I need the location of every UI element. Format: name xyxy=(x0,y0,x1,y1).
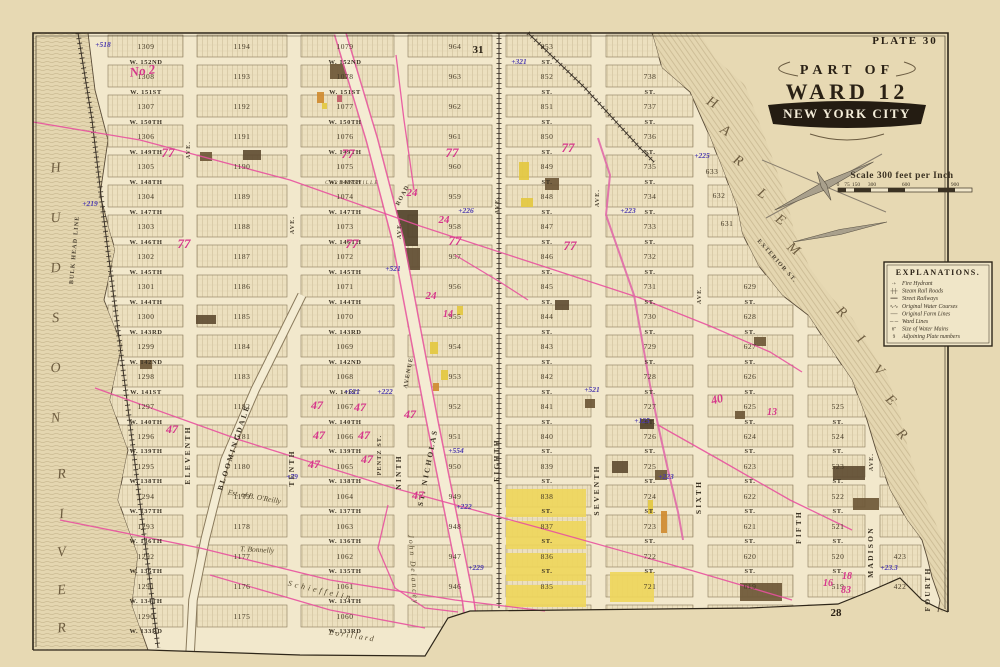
street-suffix-label: ST. xyxy=(542,239,553,246)
street-label: W. 151ST xyxy=(130,89,162,96)
street-label: W. 146TH xyxy=(129,239,162,246)
block-number: 961 xyxy=(449,132,462,141)
street-suffix-label: ST. xyxy=(645,209,656,216)
block-number: 1176 xyxy=(234,582,251,591)
block-number: 631 xyxy=(721,219,734,228)
block-number: 724 xyxy=(644,492,657,501)
street-label: W. 150TH xyxy=(129,119,162,126)
street-suffix-label: ST. xyxy=(645,89,656,96)
street-suffix-label: ST. xyxy=(645,299,656,306)
street-label: W. 147TH xyxy=(129,209,162,216)
block-number: 725 xyxy=(644,462,657,471)
street-suffix-label: ST. xyxy=(542,59,553,66)
block-number: 1073 xyxy=(337,222,354,231)
block-number: 1075 xyxy=(337,162,354,171)
block-number: 947 xyxy=(449,552,462,561)
annotation-magenta: 13 xyxy=(767,407,777,418)
street-label: W. 137TH xyxy=(129,508,162,515)
block-number: 721 xyxy=(644,582,657,591)
block-number: 850 xyxy=(541,132,554,141)
scale-tick: 600 xyxy=(902,182,911,188)
block-number: 851 xyxy=(541,102,554,111)
block-number: 954 xyxy=(449,342,462,351)
annotation-magenta: 77 xyxy=(562,140,576,155)
avenue-label: FIFTH xyxy=(794,510,803,544)
street-suffix-label: ST. xyxy=(833,538,844,545)
block-number: 727 xyxy=(644,402,657,411)
street-suffix-label: ST. xyxy=(645,478,656,485)
scale-caption: Scale 300 feet per Inch xyxy=(850,171,953,181)
block-number: 951 xyxy=(449,432,462,441)
building-mark xyxy=(555,300,569,310)
street-label: W. 138TH xyxy=(328,478,361,485)
block-number: 1187 xyxy=(234,252,251,261)
block-number: 738 xyxy=(644,72,657,81)
block-number: 1291 xyxy=(138,582,155,591)
block-number: 849 xyxy=(541,162,554,171)
block-number: 633 xyxy=(706,167,719,176)
street-suffix-label: ST. xyxy=(645,149,656,156)
avenue-label: AVE. xyxy=(697,286,703,304)
block-number: 620 xyxy=(744,552,757,561)
block-number: 964 xyxy=(449,42,462,51)
legend-symbol: ·+ xyxy=(892,282,897,287)
annotation-purple: +521 xyxy=(584,385,600,394)
hudson-river-letter: D xyxy=(49,261,62,277)
block-number: 736 xyxy=(644,132,657,141)
block-number: 844 xyxy=(541,312,554,321)
street-suffix-label: ST. xyxy=(645,239,656,246)
block-number: 1079 xyxy=(337,42,354,51)
annotation-purple: +222 xyxy=(377,387,393,396)
block-number: 1190 xyxy=(234,162,251,171)
block-number: 950 xyxy=(449,462,462,471)
scale-tick: 300 xyxy=(868,182,877,188)
block-number: 733 xyxy=(644,222,657,231)
block-number: 1060 xyxy=(337,612,354,621)
block-number: 1077 xyxy=(337,102,354,111)
block-number: 1186 xyxy=(234,282,251,291)
block-number: 1305 xyxy=(138,162,155,171)
street-suffix-label: ST. xyxy=(745,329,756,336)
block-number: 837 xyxy=(541,522,554,531)
avenue-label: TENTH xyxy=(287,449,296,486)
annotation-magenta: 77 xyxy=(564,238,578,253)
block-number: 1178 xyxy=(234,522,251,531)
block-number: 1293 xyxy=(138,522,155,531)
avenue-label: AVE. xyxy=(397,221,403,239)
block-number: 731 xyxy=(644,282,657,291)
legend-symbol: ┼┼ xyxy=(889,288,898,295)
street-suffix-label: ST. xyxy=(745,538,756,545)
block-number: 1189 xyxy=(234,192,251,201)
annotation-magenta: 77 xyxy=(446,145,460,160)
block-number: 1292 xyxy=(138,552,155,561)
annotation-purple: +321 xyxy=(511,57,527,66)
street-label: W. 144TH xyxy=(129,299,162,306)
street-suffix-label: ST. xyxy=(542,508,553,515)
block-number: 959 xyxy=(449,192,462,201)
block-number: 840 xyxy=(541,432,554,441)
block-number: 520 xyxy=(832,552,845,561)
scale-tick: 900 xyxy=(951,182,960,188)
street-label: W. 134TH xyxy=(129,598,162,605)
block-number: 524 xyxy=(832,432,845,441)
block-number: 1294 xyxy=(138,492,155,501)
title-part-of: PART OF xyxy=(800,63,894,78)
street-suffix-label: ST. xyxy=(645,359,656,366)
legend-symbol: ══ xyxy=(889,297,898,302)
title-city: NEW YORK CITY xyxy=(783,106,911,121)
annotation-magenta: 24 xyxy=(438,214,451,226)
street-suffix-label: ST. xyxy=(542,568,553,575)
block-number: 852 xyxy=(541,72,554,81)
block-number: 1180 xyxy=(234,462,251,471)
block-number: 521 xyxy=(832,522,845,531)
annotation-magenta: 14 xyxy=(443,309,453,320)
block-number: 1183 xyxy=(234,372,251,381)
street-label: W. 139TH xyxy=(129,448,162,455)
block-number: 423 xyxy=(894,552,907,561)
atlas-map-canvas: 1290129112921293129412951296129712981299… xyxy=(0,0,1000,667)
annotation-magenta: 47 xyxy=(403,407,417,421)
avenue-label: SIXTH xyxy=(694,480,703,514)
building-mark xyxy=(521,198,533,207)
street-suffix-label: ST. xyxy=(645,448,656,455)
annotation-magenta: 47 xyxy=(360,452,374,466)
street-suffix-label: ST. xyxy=(542,149,553,156)
building-mark xyxy=(196,315,216,324)
block-number: 1175 xyxy=(234,612,251,621)
annotation-magenta: 77 xyxy=(178,236,192,251)
block-number: 1303 xyxy=(138,222,155,231)
avenue-label: AVE. xyxy=(595,189,601,207)
annotation-purple: +521 xyxy=(385,264,401,273)
block-number: 422 xyxy=(894,582,907,591)
block-number: 960 xyxy=(449,162,462,171)
block-number: 1193 xyxy=(234,72,251,81)
legend-title: EXPLANATIONS. xyxy=(896,268,980,277)
annotation-magenta: 77 xyxy=(342,146,356,161)
block-number: 1290 xyxy=(138,612,155,621)
street-label: W. 136TH xyxy=(129,538,162,545)
building-mark xyxy=(243,150,261,160)
block-number: 522 xyxy=(832,492,845,501)
street-label: W. 144TH xyxy=(328,299,361,306)
street-label: W. 145TH xyxy=(328,269,361,276)
block-number: 848 xyxy=(541,192,554,201)
annotation-purple: +79 xyxy=(286,472,298,481)
street-suffix-label: ST. xyxy=(542,269,553,276)
avenue-label: EIGHTH xyxy=(492,438,501,482)
block-number: 525 xyxy=(832,402,845,411)
legend-symbol: ── xyxy=(889,312,898,317)
annotation-magenta: 77 xyxy=(162,145,176,160)
annotation-purple: +226 xyxy=(458,206,474,215)
street-label: W. 149TH xyxy=(129,149,162,156)
avenue-label: SEVENTH xyxy=(592,464,601,515)
building-mark xyxy=(735,411,745,419)
street-suffix-label: ST. xyxy=(745,389,756,396)
block-number: 1309 xyxy=(138,42,155,51)
block-number: 1295 xyxy=(138,462,155,471)
building-mark xyxy=(612,461,628,473)
street-suffix-label: ST. xyxy=(645,389,656,396)
block-number: 956 xyxy=(449,282,462,291)
street-suffix-label: ST. xyxy=(833,448,844,455)
legend-symbol: 6″ xyxy=(892,328,897,333)
estate-name: T. Bonnelly xyxy=(240,544,275,555)
street-suffix-label: ST. xyxy=(542,359,553,366)
annotation-purple: +219 xyxy=(82,199,98,208)
block-number: 1072 xyxy=(337,252,354,261)
adjoining-plate-top: 31 xyxy=(473,44,484,56)
street-label: W. 145TH xyxy=(129,269,162,276)
block-number: 722 xyxy=(644,552,657,561)
block-number: 842 xyxy=(541,372,554,381)
annotation-magenta: 24 xyxy=(406,187,419,199)
block-number: 1076 xyxy=(337,132,354,141)
block-number: 853 xyxy=(541,42,554,51)
legend-symbol: ─ ─ xyxy=(889,320,899,325)
street-suffix-label: ST. xyxy=(542,419,553,426)
block-number: 1078 xyxy=(337,72,354,81)
block-number: 846 xyxy=(541,252,554,261)
block-number: 1301 xyxy=(138,282,155,291)
block-number: 621 xyxy=(744,522,757,531)
block-number: 958 xyxy=(449,222,462,231)
street-suffix-label: ST. xyxy=(645,269,656,276)
street-suffix-label: ST. xyxy=(542,89,553,96)
block-number: 1071 xyxy=(337,282,354,291)
street-suffix-label: ST. xyxy=(542,119,553,126)
block-number: 838 xyxy=(541,492,554,501)
block-number: 726 xyxy=(644,432,657,441)
avenue-label: AVE. xyxy=(186,141,192,159)
block-number: 835 xyxy=(541,582,554,591)
annotation-magenta: 18 xyxy=(842,571,852,582)
annotation-magenta: 47 xyxy=(165,422,179,436)
street-label: W. 143RD xyxy=(328,329,361,336)
scale-tick: 150 xyxy=(852,182,861,188)
block-number: 1307 xyxy=(138,102,155,111)
block-number: 729 xyxy=(644,342,657,351)
street-label: W. 140TH xyxy=(328,419,361,426)
block-number: 948 xyxy=(449,522,462,531)
annotation-magenta: 47 xyxy=(353,400,367,414)
street-suffix-label: ST. xyxy=(542,389,553,396)
street-suffix-label: ST. xyxy=(745,419,756,426)
block-number: 1299 xyxy=(138,342,155,351)
annotation-purple: +225 xyxy=(694,151,710,160)
block-number: 737 xyxy=(644,102,657,111)
block-number: 632 xyxy=(713,191,726,200)
avenue-label: MADISON xyxy=(866,526,875,578)
avenue-label: AVE. xyxy=(869,453,875,471)
street-suffix-label: ST. xyxy=(645,538,656,545)
street-suffix-label: ST. xyxy=(645,508,656,515)
legend-item-label: Fire Hydrant xyxy=(901,281,933,287)
street-suffix-label: ST. xyxy=(745,568,756,575)
block-number: 1188 xyxy=(234,222,251,231)
street-label: W. 142ND xyxy=(129,359,162,366)
annotation-purple: +222 xyxy=(456,502,472,511)
building-mark xyxy=(322,103,327,109)
block-number: 952 xyxy=(449,402,462,411)
block-number: 957 xyxy=(449,252,462,261)
block-number: 735 xyxy=(644,162,657,171)
street-label: W. 135TH xyxy=(129,568,162,575)
street-suffix-label: ST. xyxy=(745,299,756,306)
block-number: 841 xyxy=(541,402,554,411)
block-number: 1063 xyxy=(337,522,354,531)
annotation-purple: +23.3 xyxy=(880,563,898,572)
street-label: W. 150TH xyxy=(328,119,361,126)
street-label: W. 147TH xyxy=(328,209,361,216)
avenue-label: NINTH xyxy=(394,454,403,490)
block-number: 1069 xyxy=(337,342,354,351)
block-number: 836 xyxy=(541,552,554,561)
map-sheet: 1290129112921293129412951296129712981299… xyxy=(0,0,1000,667)
street-suffix-label: ST. xyxy=(745,508,756,515)
block-number: 625 xyxy=(744,402,757,411)
block-number: 626 xyxy=(744,372,757,381)
block-number: 734 xyxy=(644,192,657,201)
building-mark xyxy=(433,383,439,391)
annotation-purple: +125 xyxy=(634,416,650,425)
block-number: 732 xyxy=(644,252,657,261)
block-number: 629 xyxy=(744,282,757,291)
block-number: 622 xyxy=(744,492,757,501)
block-number: 1297 xyxy=(138,402,155,411)
block-number: 946 xyxy=(449,582,462,591)
block-number: 730 xyxy=(644,312,657,321)
annotation-magenta: 47 xyxy=(312,428,326,442)
building-mark xyxy=(430,342,438,354)
street-label: W. 133RD xyxy=(129,628,162,635)
block-number: 1067 xyxy=(337,402,354,411)
street-suffix-label: ST. xyxy=(542,209,553,216)
street-label: W. 141ST xyxy=(130,389,162,396)
street-suffix-label: ST. xyxy=(542,329,553,336)
legend-box: EXPLANATIONS. ·+Fire Hydrant┼┼Steam Rail… xyxy=(884,262,992,346)
annotation-magenta: 24 xyxy=(425,290,438,302)
block-number: 1064 xyxy=(337,492,354,501)
avenue-label: ELEVENTH xyxy=(183,425,192,484)
block-number: 1300 xyxy=(138,312,155,321)
plate-number: PLATE 30 xyxy=(872,35,938,47)
block-number: 1074 xyxy=(337,192,354,201)
block-number: 723 xyxy=(644,522,657,531)
annotation-magenta: 77 xyxy=(449,233,463,248)
street-label: W. 135TH xyxy=(328,568,361,575)
block-number: 1304 xyxy=(138,192,155,201)
legend-item-label: Original Water Courses xyxy=(902,304,958,310)
street-suffix-label: ST. xyxy=(542,179,553,186)
block-number: 1184 xyxy=(234,342,251,351)
legend-item-label: Adjoining Plate numbers xyxy=(901,334,961,340)
block-number: 523 xyxy=(832,462,845,471)
annotation-magenta: 77 xyxy=(346,236,360,251)
legend-item-label: Size of Water Mains xyxy=(902,326,949,333)
annotation-purple: +223 xyxy=(658,472,674,481)
block-number: 962 xyxy=(449,102,462,111)
avenue-label: AVE. xyxy=(495,196,501,214)
hudson-river-letter: O xyxy=(50,361,62,377)
annotation-magenta: 83 xyxy=(841,585,851,596)
block-number: 1302 xyxy=(138,252,155,261)
legend-symbol: ∿∿ xyxy=(890,305,898,310)
street-suffix-label: ST. xyxy=(833,508,844,515)
street-label: W. 137TH xyxy=(328,508,361,515)
street-suffix-label: ST. xyxy=(833,419,844,426)
street-suffix-label: ST. xyxy=(833,478,844,485)
building-mark xyxy=(519,162,529,180)
annotation-purple: +223 xyxy=(620,206,636,215)
building-mark xyxy=(317,92,324,103)
street-suffix-label: ST. xyxy=(542,448,553,455)
block-number: 627 xyxy=(744,342,757,351)
annotation-magenta: 47 xyxy=(310,398,324,412)
avenue-label: AVE. xyxy=(290,216,296,234)
building-mark xyxy=(337,95,342,102)
block-number: 1070 xyxy=(337,312,354,321)
block-number: 728 xyxy=(644,372,657,381)
annotation-purple: +554 xyxy=(448,446,464,455)
street-label: W. 136TH xyxy=(328,538,361,545)
annotation-purple: +521 xyxy=(344,387,360,396)
street-suffix-label: ST. xyxy=(645,568,656,575)
street-suffix-label: ST. xyxy=(745,359,756,366)
avenue-label: PENTZ ST. xyxy=(377,435,383,476)
annotation-purple: +518 xyxy=(95,40,111,49)
block-number: 623 xyxy=(744,462,757,471)
annotation-purple: +229 xyxy=(468,563,484,572)
block-number: 953 xyxy=(449,372,462,381)
street-label: W. 152ND xyxy=(328,59,361,66)
title-ward: WARD 12 xyxy=(786,79,909,104)
street-suffix-label: ST. xyxy=(542,538,553,545)
street-suffix-label: ST. xyxy=(745,448,756,455)
street-label: W. 138TH xyxy=(129,478,162,485)
scale-tick: 75 xyxy=(844,182,850,188)
block-number: 1306 xyxy=(138,132,155,141)
scale-tick: 0 xyxy=(837,182,840,188)
block-number: 1296 xyxy=(138,432,155,441)
block-number: 949 xyxy=(449,492,462,501)
building-mark xyxy=(441,370,448,380)
building-mark xyxy=(853,498,879,510)
estate-name: CARMANSVILLE xyxy=(325,181,379,186)
street-label: W. 151ST xyxy=(329,89,361,96)
block-number: 1068 xyxy=(337,372,354,381)
street-label: W. 140TH xyxy=(129,419,162,426)
legend-item-label: Steam Rail Roads xyxy=(902,289,944,295)
street-label: W. 143RD xyxy=(129,329,162,336)
block-number: 1185 xyxy=(234,312,251,321)
building-mark xyxy=(585,399,595,408)
legend-item-label: Street Railways xyxy=(902,296,939,302)
block-number: 1194 xyxy=(234,42,251,51)
block-number: 839 xyxy=(541,462,554,471)
block-number: 847 xyxy=(541,222,554,231)
annotation-magenta: 47 xyxy=(411,488,425,502)
block-number: 1298 xyxy=(138,372,155,381)
block-number: 843 xyxy=(541,342,554,351)
annotation-magenta: 47 xyxy=(307,457,321,471)
street-label: W. 139TH xyxy=(328,448,361,455)
street-suffix-label: ST. xyxy=(645,329,656,336)
